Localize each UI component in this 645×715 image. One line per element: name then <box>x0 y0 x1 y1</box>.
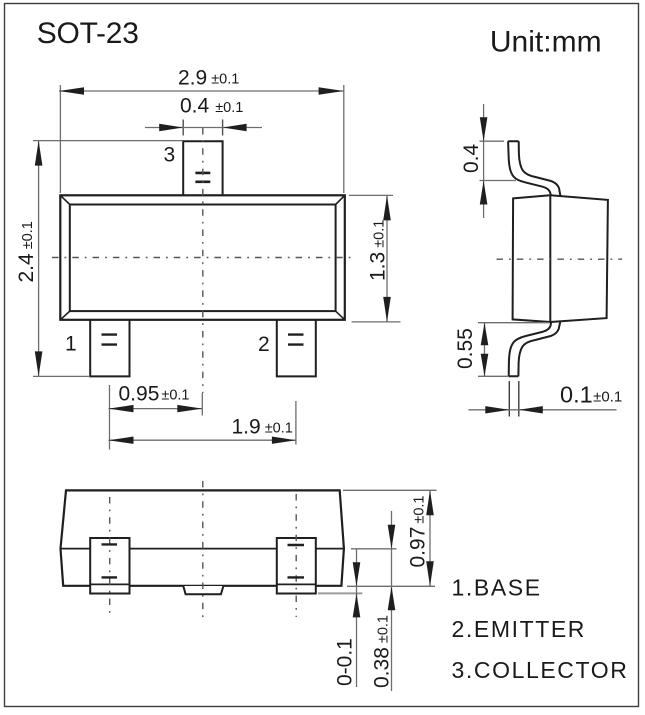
svg-text:0.55: 0.55 <box>454 328 477 369</box>
svg-text:3.COLLECTOR: 3.COLLECTOR <box>452 657 629 683</box>
svg-text:2.EMITTER: 2.EMITTER <box>452 616 587 642</box>
svg-text:0-0.1: 0-0.1 <box>334 638 357 686</box>
svg-text:1: 1 <box>65 333 77 356</box>
svg-text:1.BASE: 1.BASE <box>452 575 542 601</box>
svg-text:2: 2 <box>258 333 270 356</box>
svg-text:0.4: 0.4 <box>460 143 483 173</box>
svg-text:Unit:mm: Unit:mm <box>490 26 602 59</box>
svg-text:SOT-23: SOT-23 <box>37 17 139 50</box>
svg-text:3: 3 <box>164 144 176 167</box>
